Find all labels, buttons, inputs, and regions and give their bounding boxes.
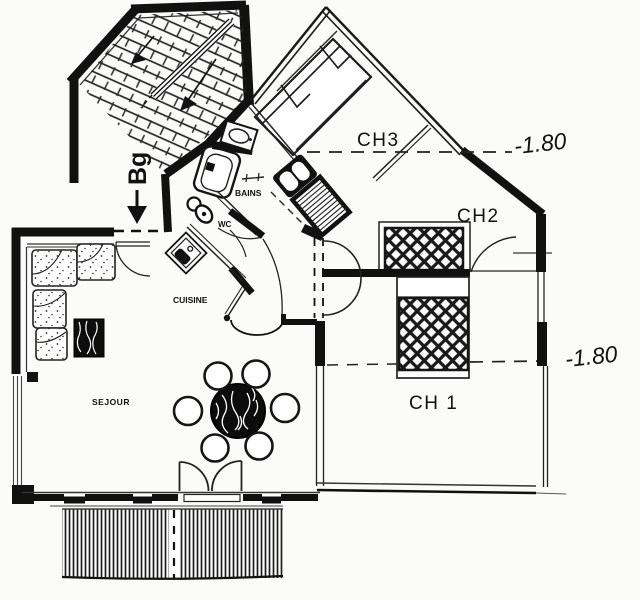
svg-text:WC: WC	[218, 220, 232, 229]
svg-text:CUISINE: CUISINE	[173, 295, 208, 305]
svg-text:CH3: CH3	[357, 130, 400, 151]
svg-text:BAINS: BAINS	[235, 188, 262, 198]
svg-text:CH 1: CH 1	[409, 393, 458, 414]
svg-text:CH2: CH2	[457, 206, 500, 227]
svg-text:Bg: Bg	[124, 152, 152, 185]
svg-text:-1.80: -1.80	[564, 341, 619, 372]
svg-text:-1.80: -1.80	[513, 128, 568, 159]
svg-text:SEJOUR: SEJOUR	[92, 397, 130, 407]
